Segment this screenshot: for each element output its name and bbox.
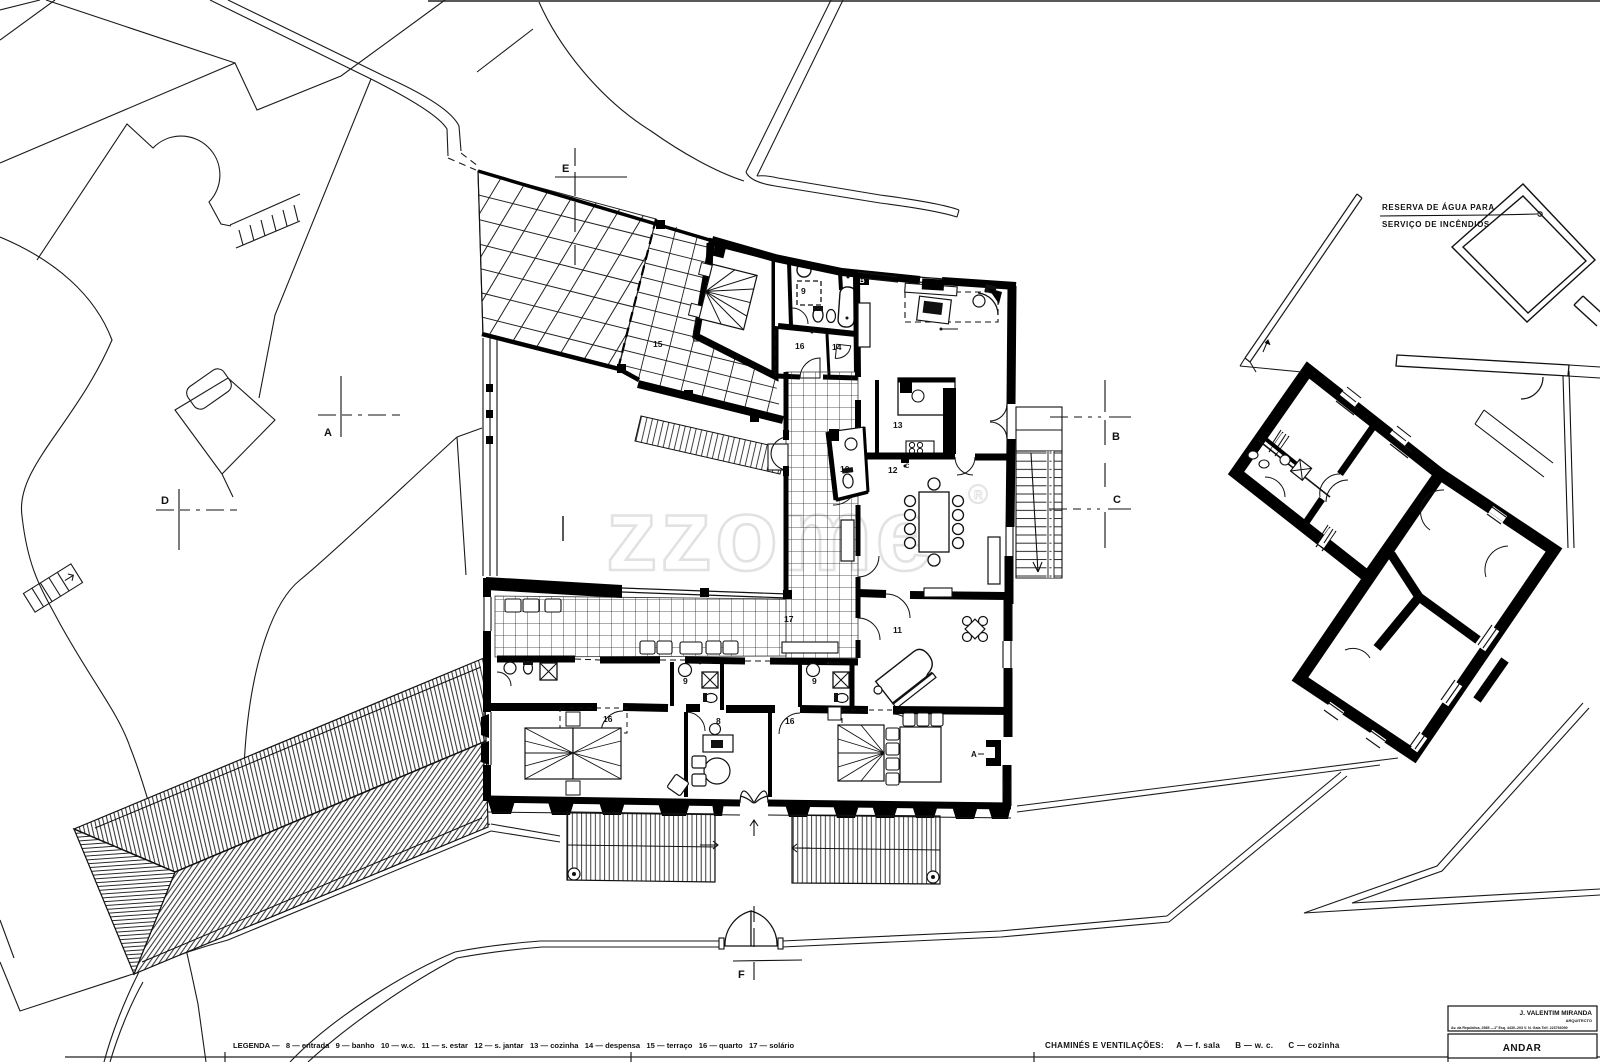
svg-text:C: C xyxy=(905,464,910,470)
svg-text:Av. da República, 2585 —1º Esq: Av. da República, 2585 —1º Esq. 4430–203… xyxy=(1451,1026,1568,1030)
svg-text:9: 9 xyxy=(812,676,817,686)
svg-text:9: 9 xyxy=(801,286,806,296)
svg-text:A: A xyxy=(324,427,332,439)
svg-text:LEGENDA — 8 — entrada 9 —: LEGENDA — 8 — entrada 9 — banho 10 — w.c… xyxy=(233,1041,795,1050)
svg-text:11: 11 xyxy=(893,625,902,635)
svg-text:16: 16 xyxy=(795,341,805,351)
svg-text:RESERVA DE ÁGUA PARA: RESERVA DE ÁGUA PARA xyxy=(1382,203,1495,212)
svg-text:SERVIÇO DE INCÊNDIOS: SERVIÇO DE INCÊNDIOS xyxy=(1382,220,1490,229)
svg-text:8: 8 xyxy=(716,716,721,726)
svg-text:zzome: zzome xyxy=(606,477,936,592)
svg-text:F: F xyxy=(738,969,745,981)
svg-text:A: A xyxy=(971,750,977,759)
svg-text:17: 17 xyxy=(784,614,794,624)
svg-text:B: B xyxy=(1112,431,1120,443)
svg-text:12: 12 xyxy=(888,465,898,475)
svg-text:ARQUITECTO: ARQUITECTO xyxy=(1566,1018,1592,1023)
svg-text:CHAMINÉS E VENTILAÇÕES: A: CHAMINÉS E VENTILAÇÕES: A — f. sala B — … xyxy=(1045,1041,1340,1050)
svg-text:9: 9 xyxy=(683,676,688,686)
svg-text:15: 15 xyxy=(653,339,663,349)
svg-text:16: 16 xyxy=(603,714,613,724)
svg-text:14: 14 xyxy=(832,342,842,352)
svg-text:J. VALENTIM MIRANDA: J. VALENTIM MIRANDA xyxy=(1520,1010,1593,1017)
svg-text:ANDAR: ANDAR xyxy=(1503,1043,1542,1054)
svg-text:13: 13 xyxy=(893,420,903,430)
svg-text:16: 16 xyxy=(785,716,795,726)
svg-text:R: R xyxy=(974,488,983,502)
svg-text:D: D xyxy=(161,495,169,507)
svg-text:C: C xyxy=(1113,494,1121,506)
svg-text:E: E xyxy=(562,163,569,175)
svg-text:10: 10 xyxy=(840,464,850,474)
